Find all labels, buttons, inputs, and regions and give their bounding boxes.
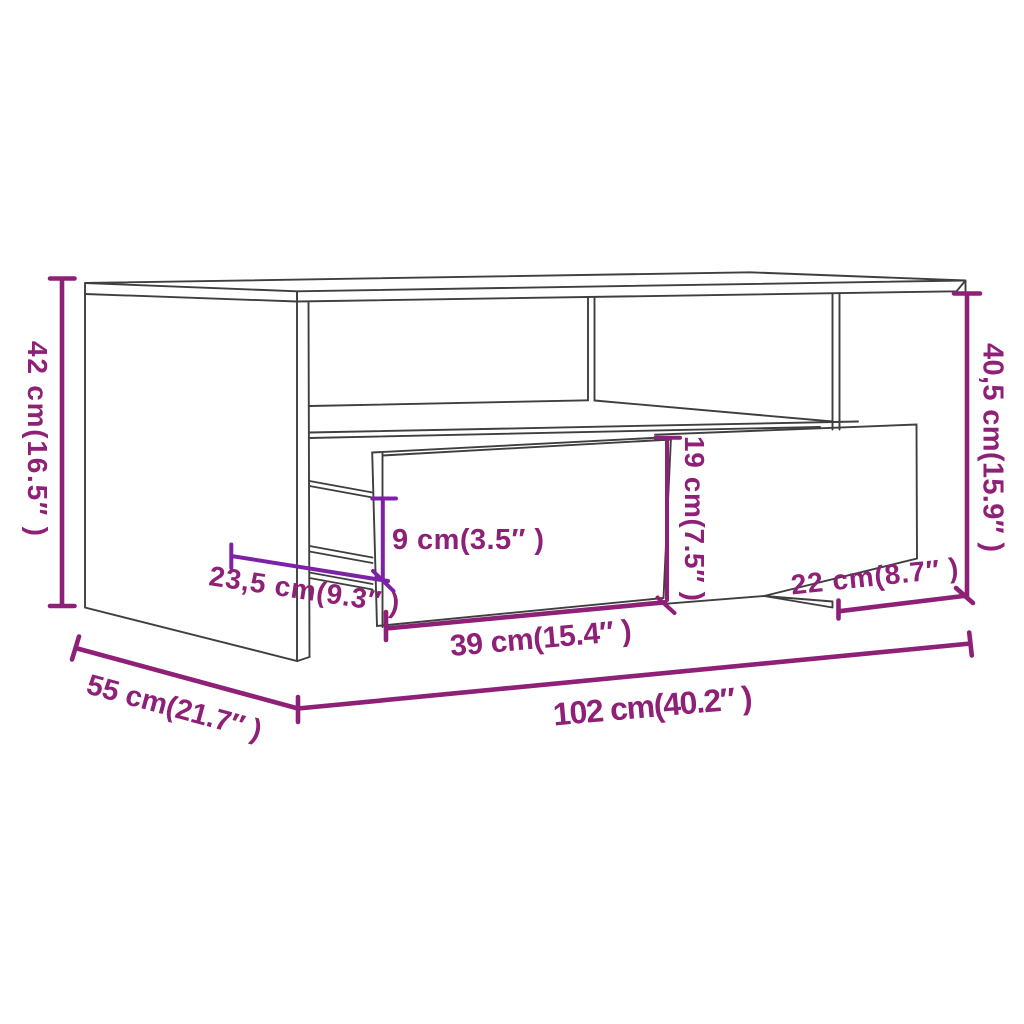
svg-text:9 cm(3.5″ ): 9 cm(3.5″ ) bbox=[392, 524, 544, 556]
svg-text:42 cm(16.5″ ): 42 cm(16.5″ ) bbox=[22, 341, 53, 536]
svg-text:19 cm(7.5″ ): 19 cm(7.5″ ) bbox=[679, 436, 710, 601]
svg-text:40,5 cm(15.9″ ): 40,5 cm(15.9″ ) bbox=[977, 343, 1009, 552]
